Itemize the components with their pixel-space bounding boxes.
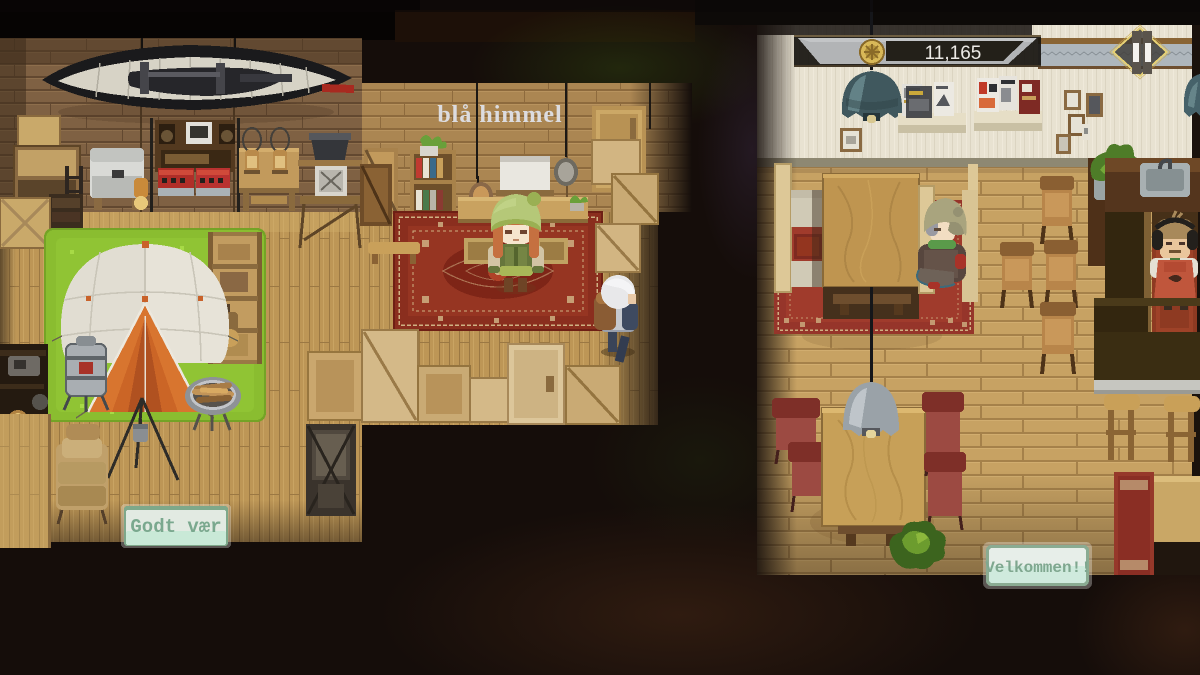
svg-text:Velkommen!!: Velkommen!! [985, 559, 1091, 577]
svg-text:blå himmel: blå himmel [437, 102, 562, 128]
svg-text:Godt vær: Godt vær [130, 516, 221, 538]
svg-text:11,165: 11,165 [925, 43, 982, 64]
